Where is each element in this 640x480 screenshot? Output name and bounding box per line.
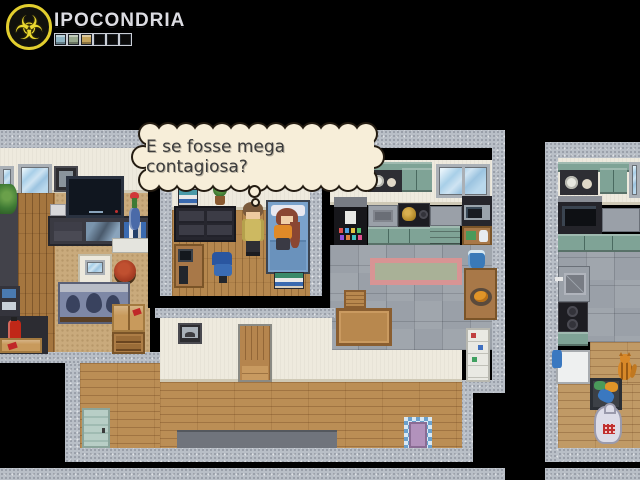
cat xyxy=(616,354,638,382)
book-stack-shelf xyxy=(178,189,198,206)
bucket xyxy=(468,250,485,269)
meter-cell xyxy=(54,33,67,46)
floor-book-stack xyxy=(274,272,304,289)
white-cabinet xyxy=(466,328,490,382)
nb-window xyxy=(629,162,640,198)
microwave-icon xyxy=(464,205,490,220)
meter-cell xyxy=(106,33,119,46)
microwave-shelf xyxy=(462,196,492,226)
cardboard-box xyxy=(112,304,145,332)
nb-wall-bottom xyxy=(558,448,640,462)
hallway-picture xyxy=(178,323,202,344)
dining-table xyxy=(336,308,392,346)
bush-icon xyxy=(0,184,17,214)
lower-floor-wall xyxy=(0,468,505,480)
mirror-icon xyxy=(85,260,105,275)
printer xyxy=(50,204,66,216)
thought-trail-dot xyxy=(251,198,260,207)
meter-cell xyxy=(67,33,80,46)
vanity-table xyxy=(78,254,112,284)
dialogue-text: E se fosse mega contagiosa? xyxy=(146,137,374,177)
fridge xyxy=(334,197,367,246)
flower-vase xyxy=(128,192,142,230)
wall-left-v xyxy=(65,363,80,462)
sink-counter xyxy=(368,205,398,227)
upper-cabinet xyxy=(402,168,432,192)
fridge-magnets xyxy=(339,228,362,240)
npc-girl xyxy=(270,208,304,256)
kitchen-window xyxy=(436,164,490,198)
nb-oven xyxy=(558,196,602,234)
stool xyxy=(114,260,136,282)
faucet-icon xyxy=(555,277,563,281)
nb-plate-shelf xyxy=(560,170,598,195)
meter-cell xyxy=(80,33,93,46)
wood-shelf xyxy=(462,226,492,246)
game-viewport[interactable]: ☣ IPOCONDRIA E se fosse mega contagiosa? xyxy=(0,0,640,480)
wood-door xyxy=(238,324,272,382)
counter xyxy=(430,206,462,226)
nb-sink-unit xyxy=(558,266,590,302)
trash-bag xyxy=(594,406,622,444)
nb-cabinet-low xyxy=(558,332,588,346)
wall-bottom xyxy=(65,448,473,462)
hud: ☣ IPOCONDRIA xyxy=(4,2,204,62)
sink-icon xyxy=(373,210,393,222)
office-chair xyxy=(210,252,238,284)
bag-label xyxy=(603,424,615,434)
lower-floor-wall-right xyxy=(545,468,640,480)
game-title: IPOCONDRIA xyxy=(54,10,185,32)
fridge-note xyxy=(345,211,356,224)
stove xyxy=(398,203,430,227)
player-character xyxy=(240,202,266,258)
computer-desk xyxy=(174,244,204,288)
dresser xyxy=(174,206,236,242)
small-box xyxy=(0,338,42,353)
food-plate xyxy=(470,288,492,306)
meter-cell xyxy=(119,33,132,46)
hallway-wall-cap xyxy=(155,308,335,318)
wall-right xyxy=(492,130,505,382)
infection-meter xyxy=(54,33,132,46)
nb-wall-top xyxy=(545,142,640,158)
utility-shelf xyxy=(0,286,20,320)
dining-chair xyxy=(344,290,366,308)
nb-wall-left xyxy=(545,142,558,462)
detergent-jug xyxy=(552,350,562,368)
laundry-sink xyxy=(556,350,590,384)
floor-recess xyxy=(177,430,337,448)
kettle-icon xyxy=(402,207,416,221)
side-table xyxy=(464,268,497,320)
teal-door xyxy=(82,408,110,448)
monitor-icon xyxy=(178,249,193,262)
hallway-wall-right xyxy=(332,350,462,382)
potted-plant-icon xyxy=(212,182,228,206)
lower-cabinet xyxy=(368,227,430,245)
purple-door xyxy=(404,417,432,448)
nb-counter xyxy=(602,208,640,232)
wood-drawers xyxy=(112,332,145,354)
biohazard-icon: ☣ xyxy=(6,4,52,50)
thought-trail-dot xyxy=(248,185,261,198)
pc-tower xyxy=(179,266,188,284)
nb-sink-icon xyxy=(564,273,586,295)
thought-bubble: E se fosse mega contagiosa? xyxy=(146,132,374,182)
drawer-cabinet xyxy=(430,226,460,245)
tv xyxy=(66,176,124,218)
meter-cell xyxy=(93,33,106,46)
rug xyxy=(370,258,462,285)
nb-stove xyxy=(558,302,588,332)
nb-lower-cabinet xyxy=(558,234,640,252)
nb-upper-cabinet xyxy=(600,168,627,194)
